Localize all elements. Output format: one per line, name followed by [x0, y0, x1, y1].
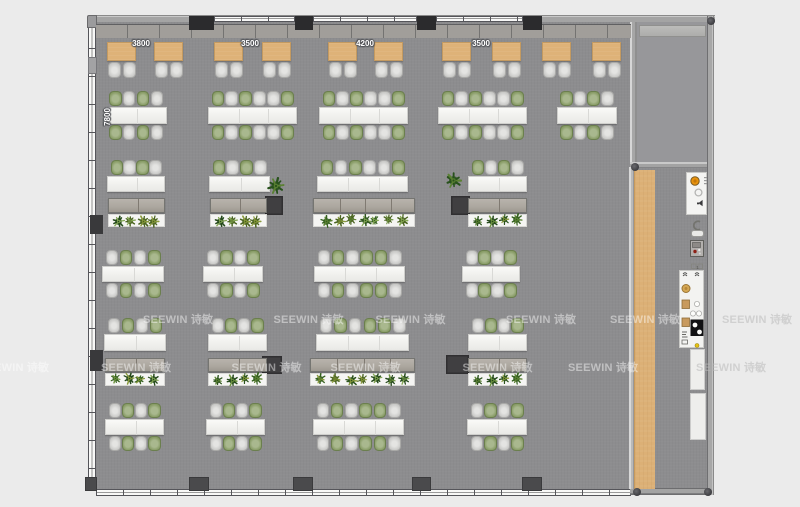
svg-text:1: 1 [696, 264, 699, 269]
